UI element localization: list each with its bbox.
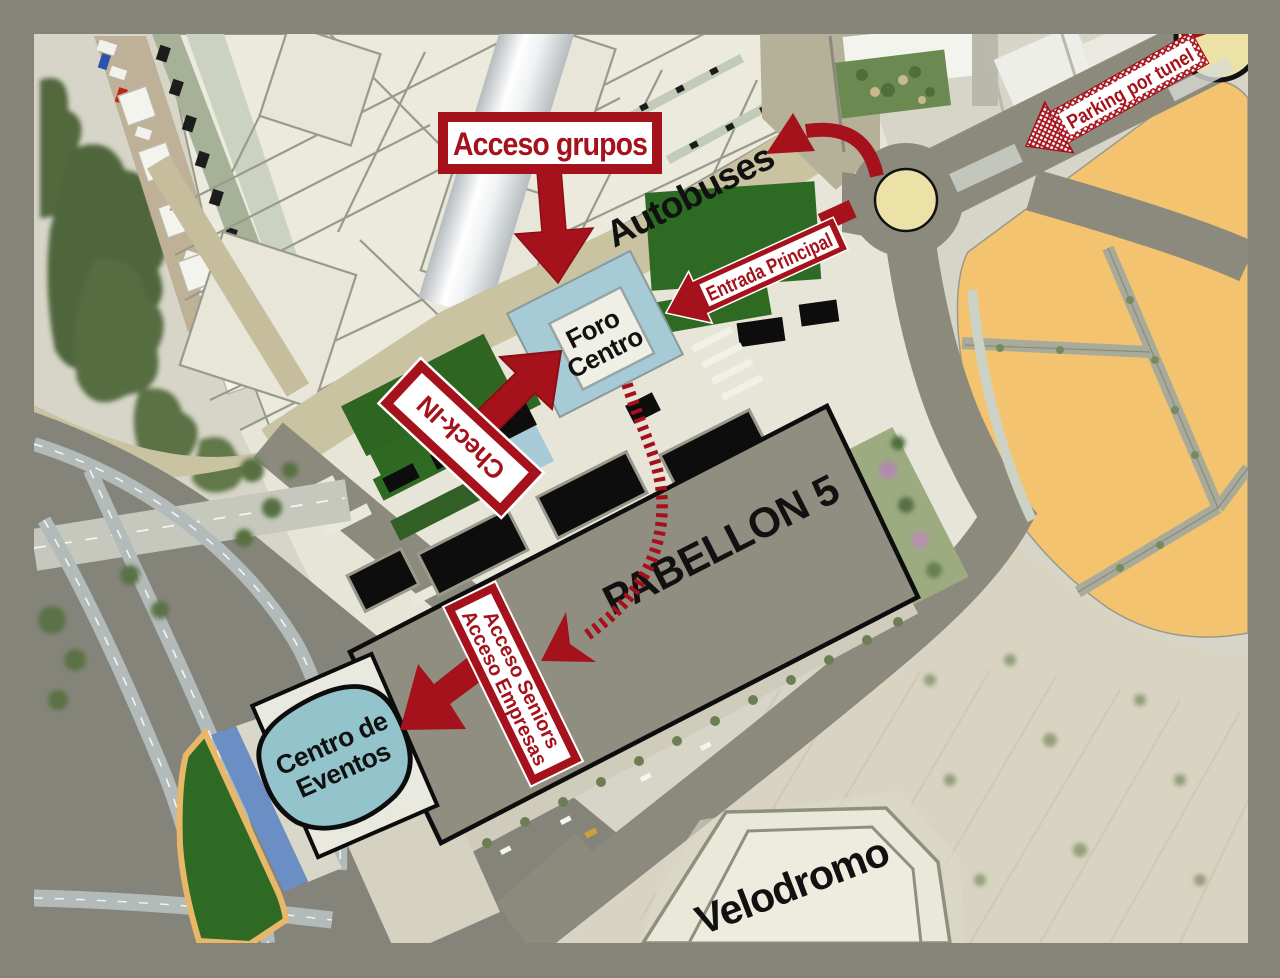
svg-text:Acceso grupos: Acceso grupos	[453, 126, 647, 162]
